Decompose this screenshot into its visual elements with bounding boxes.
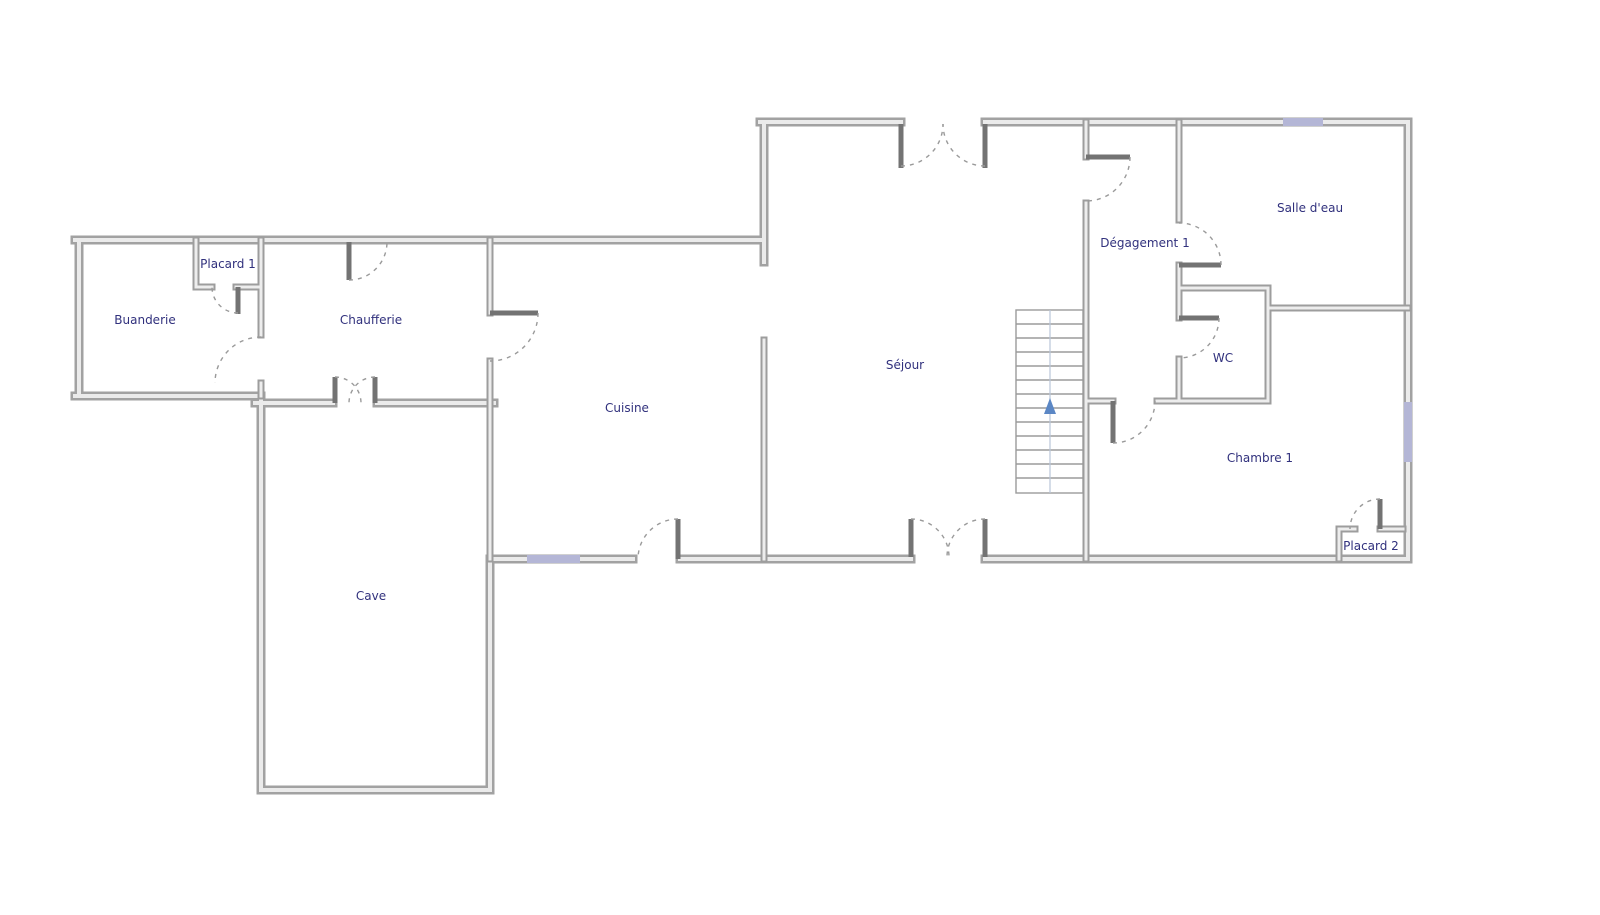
room-label-wc: WC xyxy=(1213,351,1233,365)
cave-double-door-leaves xyxy=(335,377,375,403)
room-label-cave: Cave xyxy=(356,589,386,603)
staircase xyxy=(1016,310,1083,493)
arc-placard-1 xyxy=(212,287,238,313)
arc-buanderie xyxy=(215,337,261,383)
sejour-double-door-leaves xyxy=(911,519,985,557)
room-label-chaufferie: Chaufferie xyxy=(340,313,402,327)
room-label-salle-deau: Salle d'eau xyxy=(1277,201,1343,215)
door-swing-arcs xyxy=(212,124,1380,559)
arc-degagement xyxy=(1086,157,1130,201)
windows xyxy=(527,122,1408,559)
arc-entrance-left xyxy=(901,124,943,166)
arc-cuisine-south xyxy=(638,519,678,559)
arc-placard-2 xyxy=(1350,499,1380,529)
room-label-placard-1: Placard 1 xyxy=(200,257,256,271)
room-label-sejour: Séjour xyxy=(886,358,924,372)
entrance-double-door-leaves xyxy=(901,124,985,168)
arc-cave-left xyxy=(335,377,361,403)
exterior-walls xyxy=(75,122,1408,790)
room-label-degagement-1: Dégagement 1 xyxy=(1100,236,1189,250)
arc-chaufferie-exterior xyxy=(349,242,387,280)
room-label-placard-2: Placard 2 xyxy=(1343,539,1399,553)
arc-cave-right xyxy=(349,377,375,403)
interior-walls xyxy=(196,122,1408,559)
arc-sejour-south-right xyxy=(947,519,985,557)
arc-sejour-south-left xyxy=(911,519,949,557)
arc-entrance-right xyxy=(943,124,985,166)
arc-cuisine-west xyxy=(490,313,538,361)
floor-plan-canvas: Buanderie Placard 1 Chaufferie Cuisine C… xyxy=(0,0,1600,915)
room-label-chambre-1: Chambre 1 xyxy=(1227,451,1293,465)
door-leaves xyxy=(238,124,1380,559)
stairs-direction-arrow xyxy=(1044,398,1056,414)
arc-chambre-1 xyxy=(1113,401,1155,443)
room-label-cuisine: Cuisine xyxy=(605,401,649,415)
floor-plan-drawing: Buanderie Placard 1 Chaufferie Cuisine C… xyxy=(0,0,1600,915)
room-label-buanderie: Buanderie xyxy=(114,313,175,327)
